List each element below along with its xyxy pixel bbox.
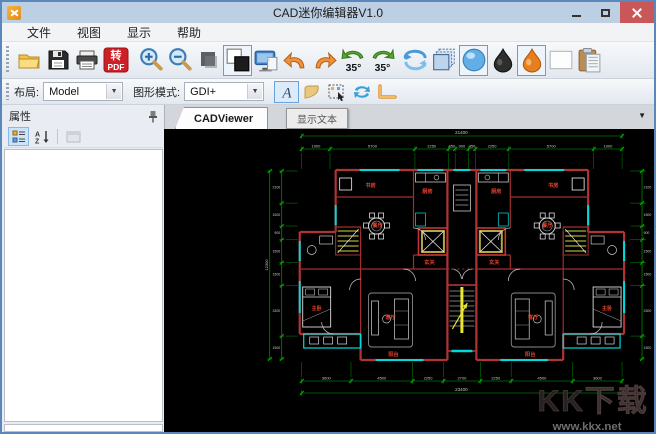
show-text-button[interactable]: A — [274, 81, 299, 103]
zoom-out-button[interactable] — [165, 45, 194, 76]
svg-text:12300: 12300 — [264, 259, 269, 271]
toolbar-grip[interactable] — [6, 46, 9, 74]
svg-text:450: 450 — [469, 143, 476, 148]
background-toggle-icon — [225, 47, 251, 73]
svg-text:书房: 书房 — [548, 181, 558, 189]
chevron-down-icon: ▼ — [106, 84, 121, 99]
property-pages-icon — [66, 130, 81, 143]
open-folder-icon — [16, 48, 42, 72]
graphics-mode-value: GDI+ — [190, 86, 216, 98]
print-button[interactable] — [72, 45, 101, 76]
floor-plan-drawing: 2140019005700225045090045022505700190036… — [164, 129, 654, 433]
svg-text:1500: 1500 — [644, 213, 652, 217]
app-window: CAD迷你编辑器V1.0 文件 视图 显示 帮助 — [0, 0, 656, 434]
svg-text:1500: 1500 — [644, 250, 652, 254]
properties-panel: 属性 A — [2, 105, 164, 433]
svg-text:1500: 1500 — [644, 346, 652, 350]
svg-text:2250: 2250 — [427, 143, 437, 148]
render-sphere-button[interactable] — [459, 45, 488, 76]
svg-text:Z: Z — [35, 138, 40, 144]
svg-text:厨房: 厨房 — [491, 187, 501, 195]
zoom-in-button[interactable] — [136, 45, 165, 76]
rotate-left-35-icon: 35° — [340, 47, 367, 74]
maximize-button[interactable] — [591, 2, 620, 23]
rotate-right-35-button[interactable]: 35° — [368, 45, 397, 76]
svg-text:厨房: 厨房 — [422, 187, 432, 195]
svg-text:1500: 1500 — [273, 346, 281, 350]
rotate-right-35-icon: 35° — [369, 47, 396, 74]
svg-text:3600: 3600 — [322, 375, 332, 380]
svg-text:3300: 3300 — [273, 309, 281, 313]
undo-icon — [282, 48, 309, 73]
tooltip-text: 显示文本 — [297, 111, 337, 126]
svg-text:3300: 3300 — [644, 309, 652, 313]
svg-text:900: 900 — [644, 231, 650, 235]
svg-text:1900: 1900 — [311, 143, 321, 148]
sort-alphabetical-button[interactable]: A Z — [31, 127, 52, 146]
svg-text:餐厅: 餐厅 — [371, 221, 383, 229]
save-button[interactable] — [43, 45, 72, 76]
layers-icon — [431, 47, 458, 73]
svg-text:23400: 23400 — [455, 387, 468, 392]
zoom-out-icon — [167, 47, 193, 73]
blank-page-icon — [548, 48, 574, 72]
property-pages-button[interactable] — [63, 127, 84, 146]
ink-orange-button[interactable] — [517, 45, 546, 76]
redo-button[interactable] — [310, 45, 339, 76]
menu-file[interactable]: 文件 — [14, 24, 64, 41]
svg-text:主卧: 主卧 — [311, 304, 322, 312]
undo-button[interactable] — [281, 45, 310, 76]
polyline-button[interactable] — [374, 81, 399, 103]
minimize-button[interactable] — [562, 2, 591, 23]
fit-view-button[interactable] — [194, 45, 223, 76]
polyline-icon — [376, 83, 398, 101]
ink-black-button[interactable] — [488, 45, 517, 76]
svg-text:2700: 2700 — [457, 375, 467, 380]
svg-text:900: 900 — [274, 231, 280, 235]
convert-pdf-button[interactable]: 转 PDF — [101, 45, 130, 76]
show-text-icon: A — [277, 83, 297, 101]
svg-text:1500: 1500 — [273, 213, 281, 217]
properties-toolbar: A Z — [4, 126, 163, 148]
svg-text:21400: 21400 — [455, 130, 468, 135]
layout-select[interactable]: Model ▼ — [43, 82, 123, 101]
toolbar-grip-2[interactable] — [6, 83, 9, 100]
redo-icon — [311, 48, 338, 73]
layers-button[interactable] — [430, 45, 459, 76]
tab-strip: CADViewer ▼ — [164, 105, 654, 129]
svg-text:450: 450 — [449, 143, 456, 148]
select-marquee-icon — [327, 83, 347, 101]
ink-black-drop-icon — [491, 47, 515, 73]
svg-text:玄关: 玄关 — [489, 258, 500, 266]
svg-text:A: A — [35, 131, 40, 138]
select-marquee-button[interactable] — [324, 81, 349, 103]
ink-orange-drop-icon — [520, 47, 544, 73]
rotate-view-icon — [402, 47, 429, 73]
properties-description-pane — [4, 424, 163, 432]
rotate-view-button[interactable] — [401, 45, 430, 76]
show-lineweight-button[interactable] — [299, 81, 324, 103]
svg-text:4500: 4500 — [538, 375, 548, 380]
background-toggle-button[interactable] — [223, 45, 252, 76]
svg-text:2250: 2250 — [424, 375, 434, 380]
show-lineweight-icon — [302, 83, 322, 101]
tab-label: CADViewer — [194, 113, 253, 125]
svg-text:PDF: PDF — [107, 62, 124, 72]
categorized-button[interactable] — [8, 127, 29, 146]
main-toolbar: 转 PDF — [2, 42, 654, 79]
window-title: CAD迷你编辑器V1.0 — [2, 4, 654, 21]
menu-display[interactable]: 显示 — [114, 24, 164, 41]
svg-text:主卧: 主卧 — [602, 304, 613, 312]
toolbar-separator — [57, 129, 58, 144]
properties-grid[interactable] — [4, 149, 163, 422]
save-icon — [45, 48, 71, 72]
paste-clipboard-icon — [576, 47, 603, 74]
svg-text:1900: 1900 — [603, 143, 613, 148]
cad-canvas[interactable]: 2140019005700225045090045022505700190036… — [164, 129, 654, 433]
minimize-icon — [572, 15, 581, 17]
pin-icon[interactable] — [148, 110, 158, 123]
close-icon — [632, 8, 642, 18]
close-button[interactable] — [620, 2, 654, 23]
svg-text:35°: 35° — [346, 62, 362, 73]
menu-bar: 文件 视图 显示 帮助 — [2, 23, 654, 42]
svg-text:3600: 3600 — [593, 375, 603, 380]
svg-text:阳台: 阳台 — [388, 350, 398, 358]
properties-panel-title: 属性 — [9, 108, 148, 124]
svg-text:1500: 1500 — [273, 250, 281, 254]
svg-text:转: 转 — [110, 48, 121, 62]
svg-text:阳台: 阳台 — [525, 350, 535, 358]
svg-text:5700: 5700 — [368, 143, 378, 148]
svg-text:客厅: 客厅 — [527, 313, 539, 321]
svg-text:2250: 2250 — [491, 375, 501, 380]
svg-text:4500: 4500 — [377, 375, 387, 380]
chevron-down-icon: ▼ — [247, 84, 262, 99]
svg-text:玄关: 玄关 — [424, 258, 435, 266]
graphics-mode-select[interactable]: GDI+ ▼ — [184, 82, 264, 101]
sort-alphabetical-icon: A Z — [34, 130, 50, 144]
svg-text:A: A — [281, 85, 292, 101]
svg-text:2250: 2250 — [488, 143, 498, 148]
zoom-in-icon — [138, 47, 164, 73]
chevron-down-icon[interactable]: ▼ — [638, 111, 646, 120]
paste-button[interactable] — [575, 45, 604, 76]
categorized-icon — [12, 130, 26, 144]
rotate-left-35-button[interactable]: 35° — [339, 45, 368, 76]
print-icon — [74, 48, 100, 72]
svg-text:2100: 2100 — [644, 185, 652, 189]
title-bar: CAD迷你编辑器V1.0 — [2, 2, 654, 23]
menu-view[interactable]: 视图 — [64, 24, 114, 41]
swap-colors-icon — [351, 83, 373, 101]
view-toolbar: 布局: Model ▼ 图形模式: GDI+ ▼ A — [2, 79, 654, 105]
tooltip: 显示文本 — [286, 108, 348, 129]
swap-colors-button[interactable] — [349, 81, 374, 103]
svg-text:www.kkx.net: www.kkx.net — [552, 421, 622, 433]
svg-text:5700: 5700 — [547, 143, 557, 148]
screen-display-button[interactable] — [252, 45, 281, 76]
convert-pdf-icon: 转 PDF — [103, 47, 129, 73]
layout-label: 布局: — [14, 84, 39, 100]
svg-text:35°: 35° — [375, 62, 391, 73]
svg-text:餐厅: 餐厅 — [541, 221, 553, 229]
svg-text:客厅: 客厅 — [384, 313, 396, 321]
svg-text:KK下载: KK下载 — [538, 385, 649, 418]
graphics-mode-label: 图形模式: — [133, 84, 180, 100]
tab-cadviewer[interactable]: CADViewer — [175, 107, 268, 129]
fit-square-icon — [197, 48, 221, 72]
svg-text:书房: 书房 — [365, 181, 375, 189]
open-button[interactable] — [14, 45, 43, 76]
render-sphere-icon — [461, 47, 487, 73]
layout-value: Model — [49, 86, 79, 98]
maximize-icon — [601, 9, 610, 17]
screen-page-icon — [253, 48, 280, 73]
menu-help[interactable]: 帮助 — [164, 24, 214, 41]
viewer-pane: CADViewer ▼ — [164, 105, 654, 433]
svg-text:2100: 2100 — [273, 185, 281, 189]
svg-text:1500: 1500 — [273, 272, 281, 276]
svg-text:1500: 1500 — [644, 272, 652, 276]
svg-text:900: 900 — [459, 143, 466, 148]
blank-page-button[interactable] — [546, 45, 575, 76]
